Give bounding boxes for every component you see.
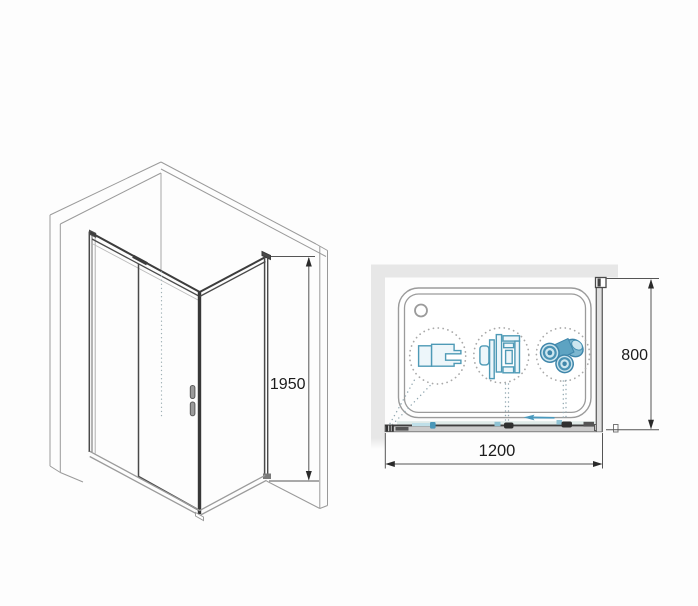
svg-text:1950: 1950: [270, 376, 306, 393]
svg-text:1200: 1200: [479, 442, 516, 460]
svg-text:800: 800: [621, 347, 648, 364]
